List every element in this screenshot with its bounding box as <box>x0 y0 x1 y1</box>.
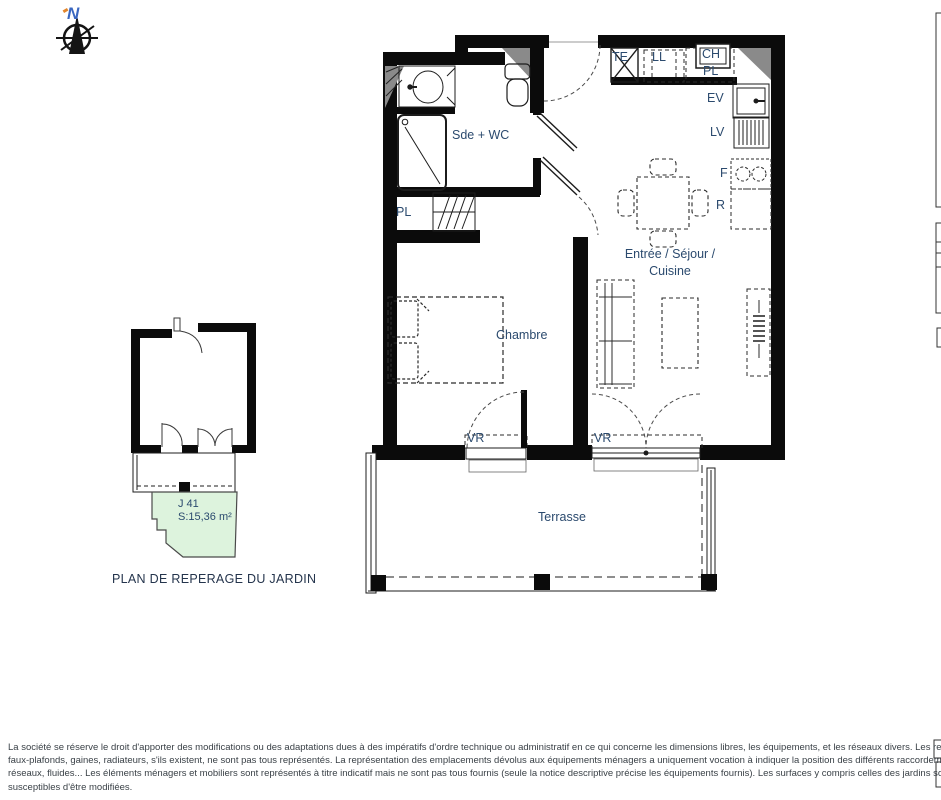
legal-line-2: faux-plafonds, gaines, radiateurs, s'ils… <box>8 754 941 767</box>
room-label-living-line1: Entrée / Séjour / <box>600 248 740 262</box>
legal-line-1: La société se réserve le droit d'apporte… <box>8 741 941 754</box>
miniplan-walls <box>131 323 256 453</box>
room-label-bedroom: Chambre <box>496 329 547 343</box>
fixture-label-dishwasher: LV <box>710 126 724 140</box>
sink-box <box>733 84 769 118</box>
door-leaves <box>537 113 580 195</box>
fixture-label-closet-entry: PL <box>703 65 718 79</box>
washbasin <box>399 66 455 107</box>
miniplan-terrace <box>133 453 235 492</box>
fixture-label-washing-machine: LL <box>652 51 666 65</box>
hob-box <box>731 159 771 189</box>
fixture-label-electrical-panel: TE <box>612 51 628 65</box>
coffee-table <box>662 298 698 368</box>
north-label: N <box>67 5 79 24</box>
window-label-living: VR <box>594 432 611 446</box>
garden-plan-caption: PLAN DE REPERAGE DU JARDIN <box>112 573 316 587</box>
legal-disclaimer: La société se réserve le droit d'apporte… <box>8 741 941 794</box>
radiator <box>747 289 770 376</box>
garden-id-label: J 41 <box>178 498 199 510</box>
fridge-box <box>731 189 771 229</box>
legal-line-4: susceptibles d'être modifiées. <box>8 781 941 794</box>
fixture-label-fridge: R <box>716 199 725 213</box>
miniplan-doors <box>162 318 232 447</box>
room-label-terrace: Terrasse <box>538 511 586 525</box>
fixture-label-water-heater: CH <box>702 48 720 62</box>
legal-line-3: réseaux, fluides... Les éléments ménager… <box>8 767 941 780</box>
window-label-bedroom: VR <box>467 432 484 446</box>
floorplan-canvas <box>0 0 941 800</box>
closet-hatch <box>433 193 475 231</box>
room-label-living-line2: Cuisine <box>600 265 740 279</box>
fixture-label-sink: EV <box>707 92 724 106</box>
cutoff-legend-boxes <box>934 13 941 787</box>
room-label-bathroom: Sde + WC <box>452 129 509 143</box>
door-swings <box>544 45 600 235</box>
floorplan-page: N Sde + WC PL TE LL CH PL EV LV F R Entr… <box>0 0 941 800</box>
fixture-label-hob: F <box>720 167 728 181</box>
tv-cabinet <box>597 280 634 388</box>
fixture-label-closet-bathroom: PL <box>396 206 411 220</box>
dishwasher-box <box>734 117 769 148</box>
garden-area-label: S:15,36 m² <box>178 511 232 523</box>
shower <box>398 115 446 190</box>
dining-table <box>618 159 708 247</box>
bed <box>388 297 503 383</box>
